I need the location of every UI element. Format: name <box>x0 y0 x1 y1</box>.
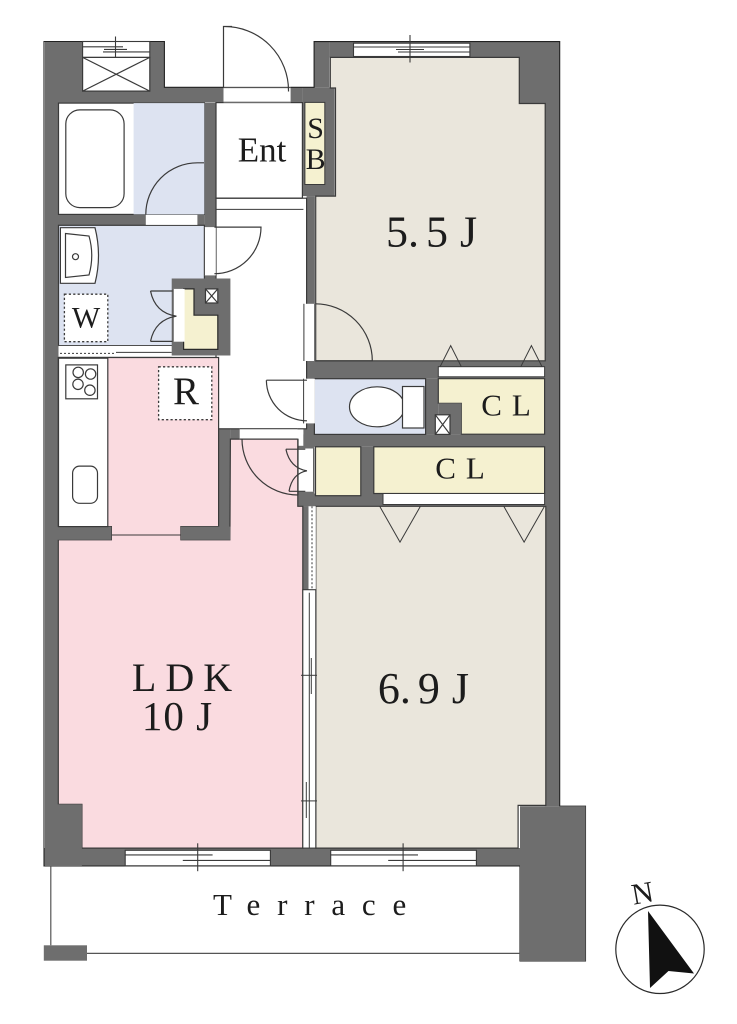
svg-text:CL: CL <box>481 388 541 423</box>
svg-text:S: S <box>307 112 324 145</box>
svg-text:10 J: 10 J <box>142 693 213 739</box>
svg-text:R: R <box>173 370 199 413</box>
svg-text:B: B <box>306 143 326 176</box>
svg-text:CL: CL <box>435 451 495 486</box>
svg-text:W: W <box>72 302 101 335</box>
svg-text:5.5J: 5.5J <box>386 208 477 257</box>
svg-text:Terrace: Terrace <box>213 887 423 922</box>
svg-text:Ent: Ent <box>238 131 287 170</box>
svg-text:6.9J: 6.9J <box>378 664 469 713</box>
